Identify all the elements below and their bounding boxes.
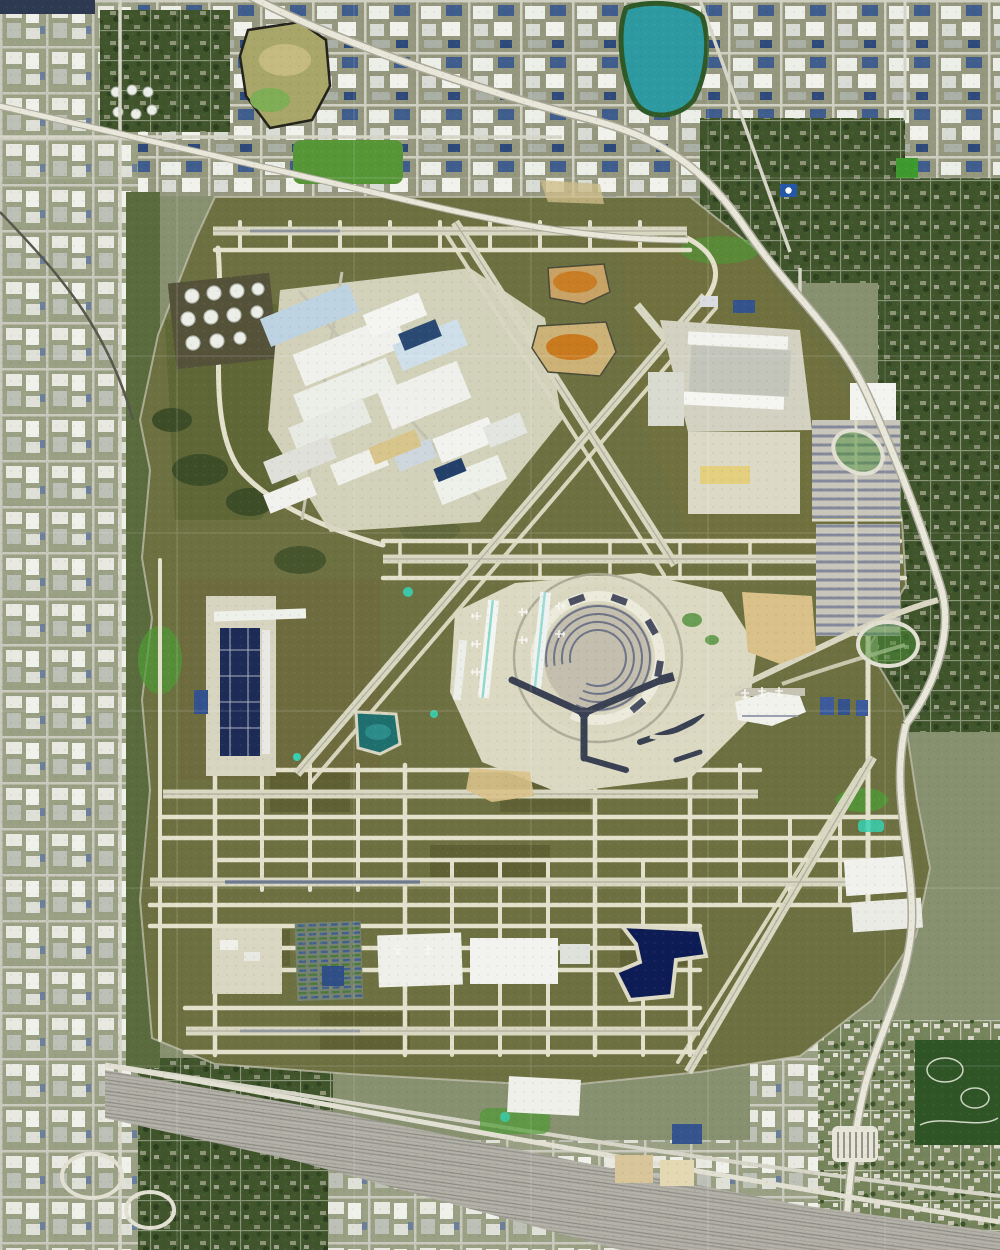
photo-grain — [0, 0, 1000, 1250]
satellite-image — [0, 0, 1000, 1250]
